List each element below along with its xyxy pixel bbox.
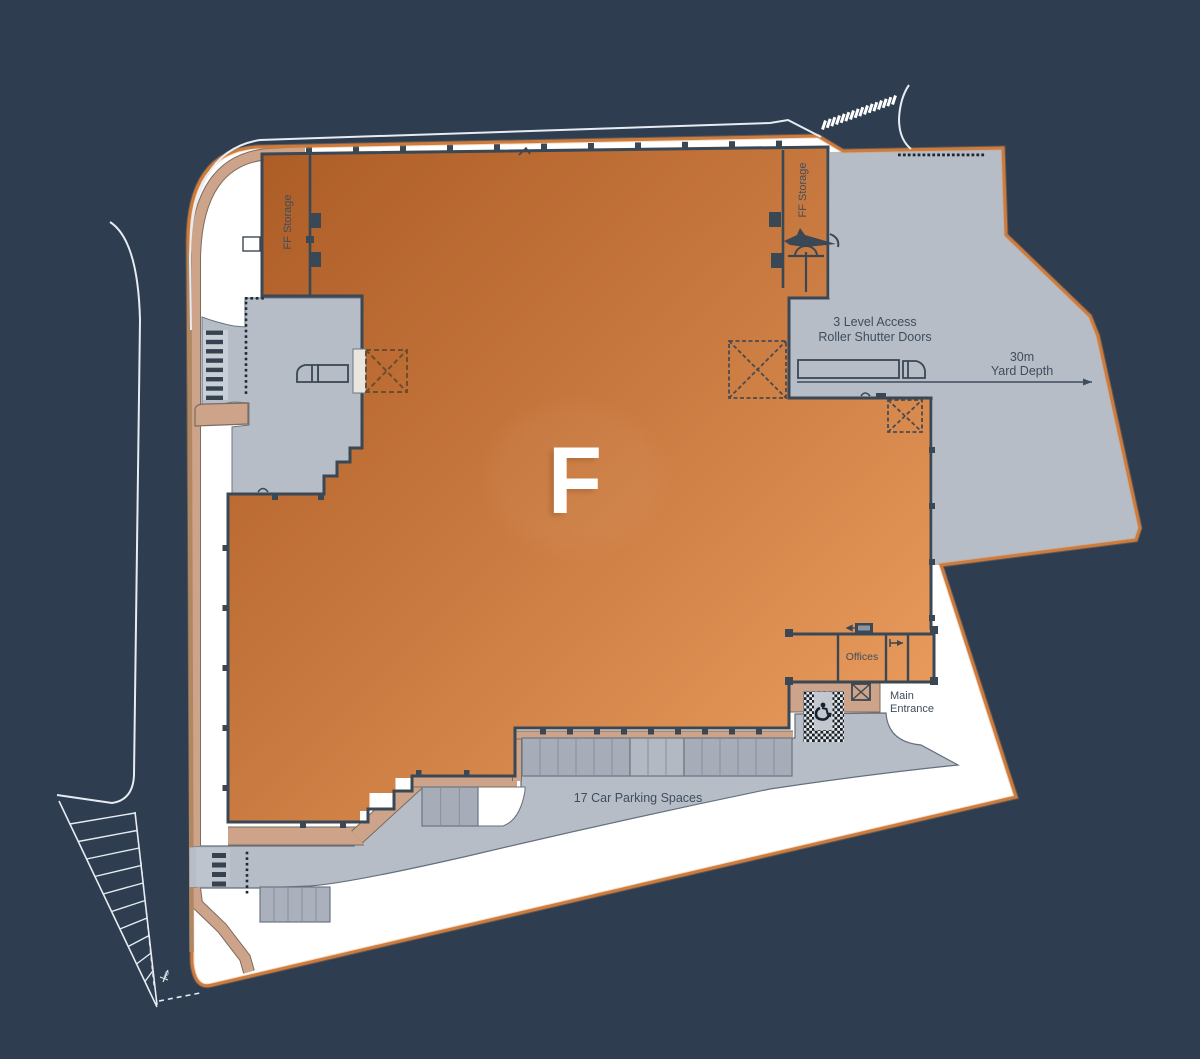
svg-text:Offices: Offices (846, 651, 878, 663)
svg-text:Entrance: Entrance (890, 703, 934, 715)
svg-text:Main: Main (890, 690, 914, 702)
svg-text:17 Car Parking Spaces: 17 Car Parking Spaces (574, 791, 703, 805)
svg-text:30m: 30m (1010, 350, 1034, 364)
svg-text:Roller Shutter Doors: Roller Shutter Doors (818, 330, 931, 344)
svg-text:FF Storage: FF Storage (797, 162, 809, 217)
svg-text:F: F (548, 428, 602, 534)
svg-text:3 Level Access: 3 Level Access (833, 315, 916, 329)
svg-text:Yard Depth: Yard Depth (991, 364, 1053, 378)
svg-text:FF Storage: FF Storage (282, 194, 294, 249)
